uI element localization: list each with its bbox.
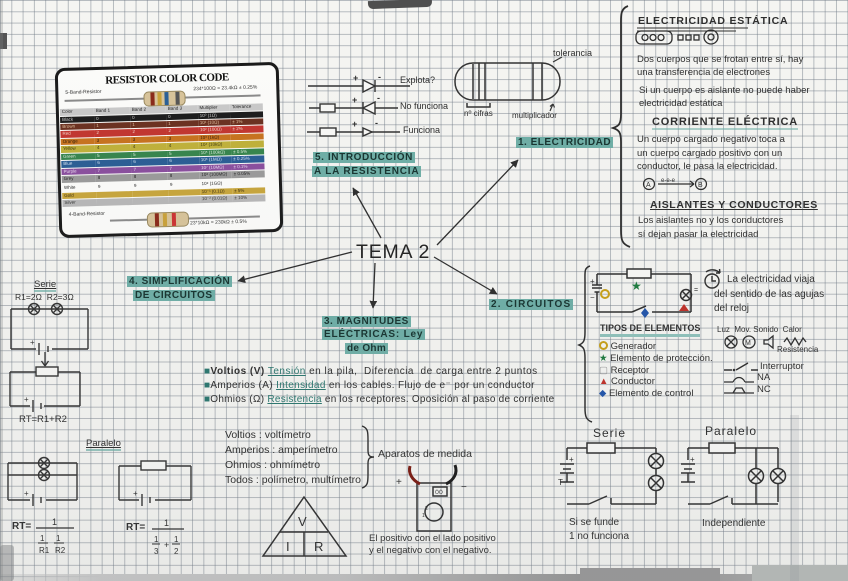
svg-text:2: 2 — [425, 506, 428, 512]
svg-text:M: M — [745, 340, 751, 347]
svg-text:T−: T− — [558, 478, 568, 487]
svg-text:+: + — [396, 477, 402, 488]
svg-text:V: V — [298, 514, 307, 529]
svg-text:R: R — [314, 539, 323, 554]
svg-text:1: 1 — [154, 535, 159, 544]
svg-text:★: ★ — [631, 279, 642, 293]
svg-text:3: 3 — [154, 547, 159, 556]
svg-text:1: 1 — [422, 513, 425, 519]
svg-text:+: + — [164, 540, 169, 550]
svg-text:1: 1 — [174, 535, 179, 544]
svg-text:+: + — [569, 455, 574, 464]
svg-text:1: 1 — [52, 517, 57, 527]
svg-text:1: 1 — [56, 534, 61, 543]
svg-text:−: − — [461, 482, 467, 493]
svg-text:A: A — [646, 182, 651, 189]
svg-text:+: + — [24, 489, 29, 498]
svg-text:1: 1 — [164, 518, 169, 528]
svg-text:+: + — [24, 395, 29, 404]
svg-text:+: + — [690, 455, 695, 464]
svg-text:B: B — [698, 182, 703, 189]
svg-text:=: = — [694, 287, 698, 294]
svg-text:R1: R1 — [39, 546, 50, 555]
svg-text:R2: R2 — [55, 546, 66, 555]
svg-text:RT=: RT= — [126, 522, 145, 533]
svg-text:ŌŌ: ŌŌ — [435, 489, 443, 496]
svg-text:+: + — [133, 489, 138, 498]
svg-text:I: I — [286, 539, 290, 554]
svg-text:e-e-e: e-e-e — [661, 178, 676, 184]
svg-text:RT=: RT= — [12, 521, 31, 532]
svg-text:2: 2 — [174, 547, 179, 556]
svg-text:+: + — [30, 338, 35, 347]
svg-text:1: 1 — [40, 534, 45, 543]
svg-text:−: − — [590, 293, 595, 302]
svg-text:+: + — [590, 277, 595, 286]
